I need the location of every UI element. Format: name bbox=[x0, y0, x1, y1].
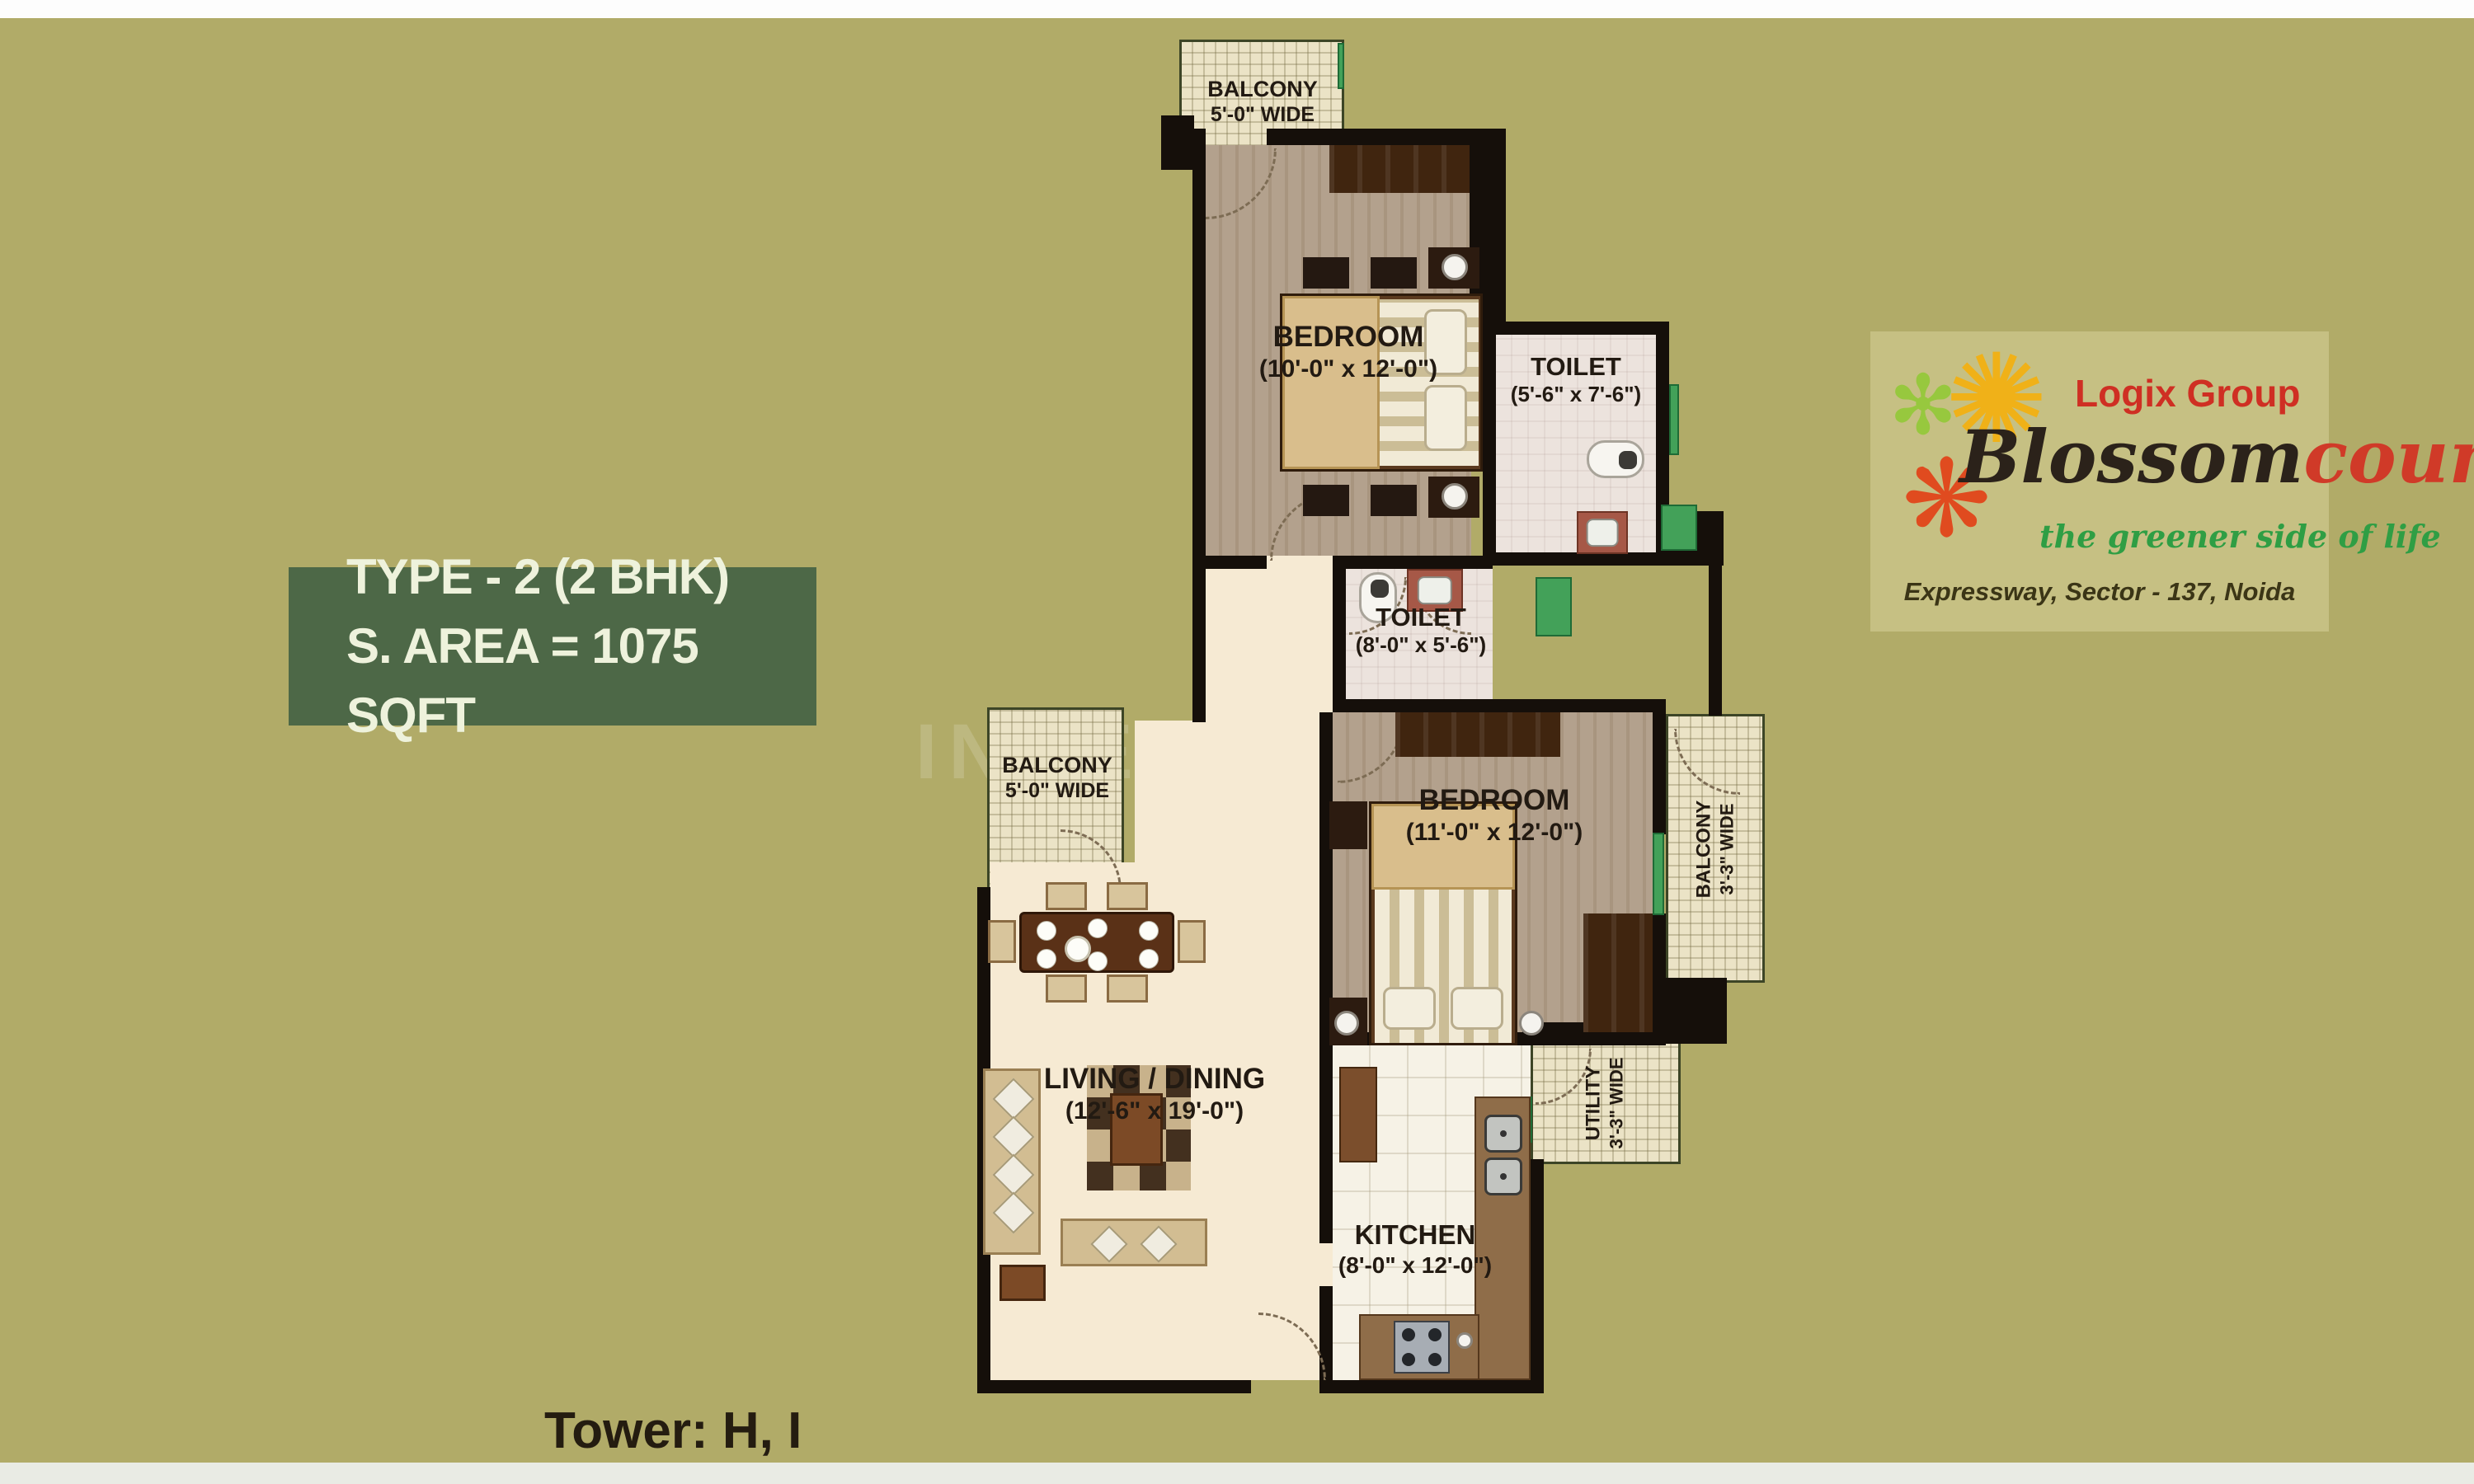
kitchen-sink bbox=[1484, 1158, 1522, 1195]
shaft-accent bbox=[1661, 505, 1697, 551]
balcony-right-label: BALCONY 3'-3" WIDE bbox=[1692, 767, 1738, 932]
wall bbox=[977, 1380, 1251, 1393]
wall bbox=[1493, 552, 1669, 566]
window-accent bbox=[1669, 384, 1679, 455]
stool bbox=[1371, 485, 1417, 516]
dining-chair bbox=[1178, 920, 1206, 963]
wall bbox=[1653, 913, 1666, 1032]
living-label: LIVING / DINING (12'-6" x 19'-0") bbox=[1004, 1062, 1305, 1126]
sofa bbox=[1061, 1219, 1207, 1266]
wall bbox=[1483, 322, 1669, 335]
floor-plan: BEDROOM (10'-0" x 12'-0") TOILET (5'-6" … bbox=[0, 0, 2474, 1484]
lamp bbox=[1442, 254, 1468, 280]
washbasin bbox=[1577, 511, 1628, 554]
lamp bbox=[1442, 483, 1468, 510]
stool bbox=[1303, 257, 1349, 289]
toilet-wc bbox=[1587, 440, 1644, 478]
floor-plan-page: TYPE - 2 (2 BHK) S. AREA = 1075 SQFT Tow… bbox=[0, 0, 2474, 1484]
wardrobe bbox=[1583, 913, 1653, 1032]
bedroom1-label: BEDROOM (10'-0" x 12'-0") bbox=[1212, 320, 1484, 384]
dining-chair bbox=[1046, 974, 1087, 1003]
toilet1-label: TOILET (5'-6" x 7'-6") bbox=[1494, 351, 1658, 407]
wall bbox=[1267, 129, 1483, 145]
wall bbox=[1390, 699, 1666, 712]
side-table bbox=[999, 1265, 1046, 1301]
wall bbox=[1653, 712, 1666, 834]
wall bbox=[1709, 566, 1722, 716]
stool bbox=[1371, 257, 1417, 289]
dining-chair bbox=[1107, 974, 1148, 1003]
corridor-floor bbox=[1206, 556, 1333, 869]
gas-hob bbox=[1394, 1321, 1450, 1374]
corridor-floor bbox=[1135, 721, 1206, 869]
wardrobe bbox=[1329, 145, 1470, 193]
wall bbox=[1192, 129, 1206, 569]
dining-chair bbox=[1107, 882, 1148, 910]
kitchen-sink bbox=[1484, 1115, 1522, 1153]
plant-accent bbox=[1536, 577, 1572, 636]
utility-label: UTILITY 3'-3" WIDE bbox=[1582, 1021, 1627, 1186]
wardrobe bbox=[1395, 712, 1560, 757]
wall bbox=[1192, 569, 1206, 722]
stool bbox=[1303, 485, 1349, 516]
kitchen-faucet bbox=[1456, 1332, 1473, 1349]
wall bbox=[1531, 1159, 1544, 1393]
lamp bbox=[1519, 1011, 1544, 1036]
wall bbox=[1333, 556, 1493, 569]
dining-chair bbox=[1046, 882, 1087, 910]
toilet2-label: TOILET (8'-0" x 5'-6") bbox=[1344, 602, 1498, 658]
dining-chair bbox=[988, 920, 1016, 963]
kitchen-cabinet bbox=[1339, 1067, 1377, 1162]
wall bbox=[1192, 556, 1267, 569]
lamp bbox=[1334, 1011, 1359, 1036]
wall bbox=[1319, 1380, 1531, 1393]
balcony-door-accent bbox=[1653, 833, 1664, 915]
balcony-left-label: BALCONY 5'-0" WIDE bbox=[993, 752, 1122, 803]
kitchen-label: KITCHEN (8'-0" x 12'-0") bbox=[1324, 1219, 1506, 1279]
balcony-top-label: BALCONY 5'-0" WIDE bbox=[1184, 76, 1341, 127]
dining-table bbox=[1019, 912, 1174, 973]
wall bbox=[1319, 712, 1333, 1045]
wall bbox=[1319, 1045, 1333, 1243]
bedroom2-label: BEDROOM (11'-0" x 12'-0") bbox=[1354, 783, 1634, 848]
